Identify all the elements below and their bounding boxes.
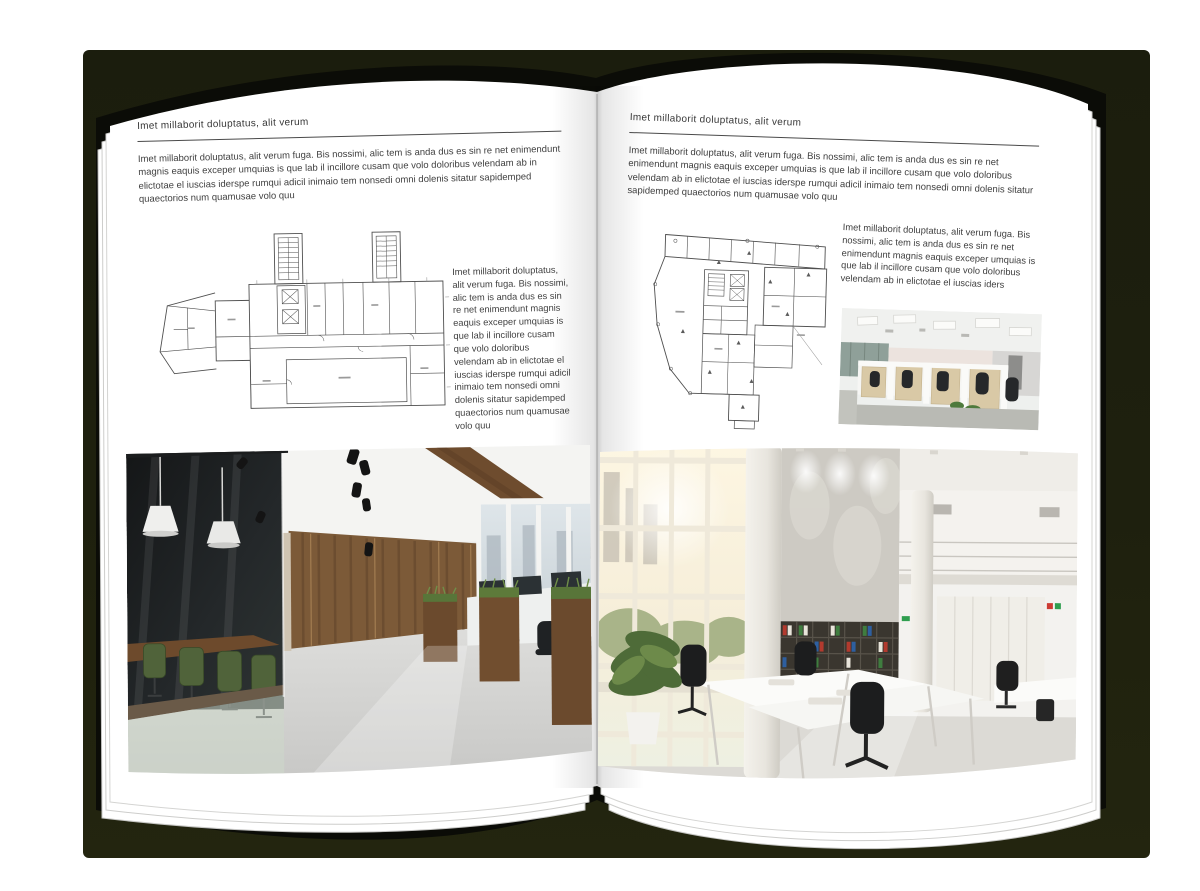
left-header-rule [137, 131, 561, 142]
left-side-paragraph: Imet millaborit doluptatus, alit verum f… [452, 264, 573, 433]
left-intro-paragraph: Imet millaborit doluptatus, alit verum f… [138, 143, 563, 207]
right-page-header-block: Imet millaborit doluptatus, alit verum I… [627, 112, 1040, 211]
office-cubicles-art [838, 308, 1042, 430]
floor-plan-drawing [156, 227, 451, 416]
left-floor-plan [156, 227, 451, 416]
left-office-photo [126, 445, 592, 780]
office-interior-art [126, 445, 592, 780]
floor-plan-drawing [642, 220, 844, 433]
left-page-header-block: Imet millaborit doluptatus, alit verum I… [137, 111, 563, 207]
brochure-mockup: Imet millaborit doluptatus, alit verum I… [0, 0, 1200, 891]
right-small-photo [838, 308, 1042, 430]
right-floor-plan [642, 220, 844, 433]
office-atrium-art [598, 444, 1078, 795]
right-office-photo [598, 444, 1078, 795]
right-side-paragraph: Imet millaborit doluptatus, alit verum f… [840, 221, 1039, 293]
